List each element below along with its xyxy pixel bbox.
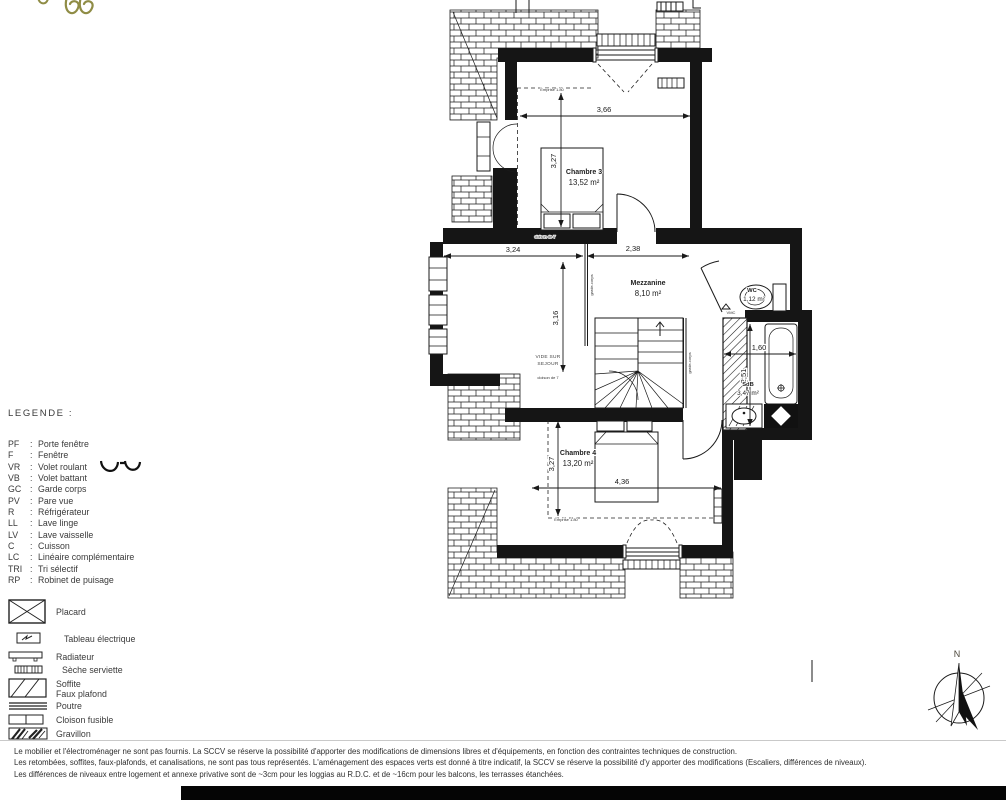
disclaimer-line-3: Les différences de niveaux entre logemen… xyxy=(14,769,998,780)
room-area-wc: 1,12 m² xyxy=(743,296,765,303)
abbr-label: Porte fenêtre xyxy=(38,439,258,450)
abbr: F xyxy=(8,450,30,461)
dim-mezzanine-height: 3,16 xyxy=(551,311,560,326)
emprise-label: Emprise 1.80 xyxy=(540,87,564,92)
legend-row: TRI:Tri sélectif xyxy=(8,564,258,575)
abbr-label: Volet battant xyxy=(38,473,258,484)
placard-icon xyxy=(8,599,56,625)
abbr-label: Linéaire complémentaire xyxy=(38,552,258,563)
symbol-label: Cloison fusible xyxy=(56,715,113,725)
cloison-label: cloison de 7 xyxy=(537,375,559,380)
abbr-label: Robinet de puisage xyxy=(38,575,258,586)
legend-row: LC:Linéaire complémentaire xyxy=(8,552,258,563)
symbol-label: Poutre xyxy=(56,701,82,711)
stairs-icon xyxy=(595,318,683,408)
legend-symbol-row: Placard xyxy=(8,599,258,625)
sep: : xyxy=(30,462,38,473)
abbr: PV xyxy=(8,496,30,507)
legend-row: LV:Lave vaisselle xyxy=(8,530,258,541)
sep: : xyxy=(30,496,38,507)
sep: : xyxy=(30,450,38,461)
volet-battant-symbol xyxy=(627,520,677,543)
sep: : xyxy=(30,507,38,518)
abbr-label: Lave vaisselle xyxy=(38,530,258,541)
sep: : xyxy=(30,518,38,529)
symbol-label: Sèche serviette xyxy=(62,665,123,675)
vide-sur-sejour-label: SEJOUR xyxy=(537,361,558,367)
room-area-mezzanine: 8,10 m² xyxy=(635,289,662,298)
dim-chambre4-height: 3,27 xyxy=(547,457,556,472)
legend-row: PF:Porte fenêtre xyxy=(8,439,258,450)
vmc-label: VMC xyxy=(727,310,736,315)
windows-mezzanine-left-icon xyxy=(429,257,447,354)
symbol-label: SoffiteFaux plafond xyxy=(56,679,107,699)
abbr: RP xyxy=(8,575,30,586)
footer-divider xyxy=(0,740,1006,741)
abbr: LC xyxy=(8,552,30,563)
legend: LEGENDE : PF:Porte fenêtre F:Fenêtre VR:… xyxy=(8,408,258,740)
door-wc xyxy=(701,261,722,312)
sep: : xyxy=(30,530,38,541)
abbr-label: Volet roulant xyxy=(38,462,258,473)
footer-disclaimer: Le mobilier et l'électroménager ne sont … xyxy=(14,746,998,780)
abbr: C xyxy=(8,541,30,552)
legend-row: LL:Lave linge xyxy=(8,518,258,529)
abbr: LV xyxy=(8,530,30,541)
bathtub-icon xyxy=(765,324,797,404)
legend-symbols: Placard Tableau électrique Radiateur Sèc… xyxy=(8,599,258,740)
legend-title: LEGENDE : xyxy=(8,408,258,419)
bottom-bar xyxy=(181,786,1006,800)
legend-row: PV:Pare vue xyxy=(8,496,258,507)
legend-symbol-row: Sèche serviette xyxy=(8,665,258,675)
abbr: PF xyxy=(8,439,30,450)
gravillon-icon xyxy=(8,727,56,740)
vide-sur-sejour-label: VIDE SUR xyxy=(535,354,560,360)
dim-mezzanine-left: 3,24 xyxy=(506,245,521,254)
radiator-chambre3-icon xyxy=(658,78,684,88)
symbol-label: Radiateur xyxy=(56,652,94,662)
door-chambre3 xyxy=(617,194,655,232)
abbr-label: Fenêtre xyxy=(38,450,258,461)
symbol-label: Placard xyxy=(56,607,86,617)
volet-battant-symbol xyxy=(598,64,652,92)
sep: : xyxy=(30,552,38,563)
room-name-mezzanine: Mezzanine xyxy=(630,280,665,287)
cloison-label: cloison de 7 xyxy=(534,234,556,239)
legend-symbol-row: Gravillon xyxy=(8,727,258,740)
sep: : xyxy=(30,541,38,552)
door-chambre4 xyxy=(683,420,722,459)
symbol-label: Gravillon xyxy=(56,729,91,739)
sep: : xyxy=(30,575,38,586)
abbr: GC xyxy=(8,484,30,495)
abbr-label: Tri sélectif xyxy=(38,564,258,575)
abbr-label: Pare vue xyxy=(38,496,258,507)
sep: : xyxy=(30,439,38,450)
tableau-electrique-icon xyxy=(8,632,64,645)
bed-chambre4-icon xyxy=(595,421,658,502)
dim-chambre4-width: 4,36 xyxy=(615,477,630,486)
sep: : xyxy=(30,473,38,484)
room-name-chambre4: Chambre 4 xyxy=(560,450,596,457)
compass-needle-white xyxy=(951,663,959,726)
legend-row: RP:Robinet de puisage xyxy=(8,575,258,586)
symbol-label: Tableau électrique xyxy=(64,634,135,644)
legend-symbol-row: Poutre xyxy=(8,701,258,711)
poutre-icon xyxy=(8,701,56,711)
sep: : xyxy=(30,564,38,575)
disclaimer-line-2: Les retombées, soffites, faux-plafonds, … xyxy=(14,757,998,768)
radiateur-icon xyxy=(8,651,56,662)
legend-symbol-row: Tableau électrique xyxy=(8,632,258,645)
sep: : xyxy=(30,484,38,495)
garde-corps-label: garde-corps xyxy=(687,352,692,373)
radiator-chambre4-icon xyxy=(714,489,722,523)
abbr: VB xyxy=(8,473,30,484)
room-area-chambre4: 13,20 m² xyxy=(563,459,594,468)
legend-symbol-row: Cloison fusible xyxy=(8,714,258,725)
compass-rose: N xyxy=(928,649,990,730)
room-area-sdb: 3,47 m² xyxy=(737,390,759,397)
abbr-label: Lave linge xyxy=(38,518,258,529)
abbr-label: Réfrigérateur xyxy=(38,507,258,518)
disclaimer-line-1: Le mobilier et l'électroménager ne sont … xyxy=(14,746,998,757)
garde-corps-label: garde-corps xyxy=(589,274,594,295)
window-chambre3-top-icon xyxy=(593,34,658,92)
room-name-wc: WC xyxy=(747,288,757,294)
north-label: N xyxy=(954,649,961,659)
soffite-faux-plafond-icon xyxy=(8,678,56,699)
washing-machine-icon xyxy=(764,404,798,428)
legend-row: C:Cuisson xyxy=(8,541,258,552)
washbasin-icon xyxy=(726,404,762,428)
dim-sdb-width: 1,60 xyxy=(752,343,767,352)
legend-symbol-row: SoffiteFaux plafond xyxy=(8,678,258,699)
legend-row: GC:Garde corps xyxy=(8,484,258,495)
abbr: TRI xyxy=(8,564,30,575)
abbr-label: Cuisson xyxy=(38,541,258,552)
room-area-chambre3: 13,52 m² xyxy=(569,178,600,187)
legend-symbol-row: Radiateur xyxy=(8,651,258,662)
dim-chambre3-height: 3,27 xyxy=(549,154,558,169)
abbr: VR xyxy=(8,462,30,473)
abbr-label: Garde corps xyxy=(38,484,258,495)
room-name-chambre3: Chambre 3 xyxy=(566,169,602,176)
room-name-sdb: SdB xyxy=(742,382,754,388)
closet-door-arcs xyxy=(493,124,517,172)
dim-chambre3-width: 3,66 xyxy=(597,105,612,114)
dim-mezzanine-right: 2,38 xyxy=(626,244,641,253)
cloison-fusible-icon xyxy=(8,714,56,725)
legend-row: R:Réfrigérateur xyxy=(8,507,258,518)
abbr: LL xyxy=(8,518,30,529)
volet-battant-legend-icon xyxy=(100,460,148,483)
seche-serviette-icon xyxy=(8,665,62,675)
abbr: R xyxy=(8,507,30,518)
window-chambre4-bottom-icon xyxy=(623,520,682,569)
window-chambre3-left-icon xyxy=(477,122,517,172)
emprise-label: Emprise 1.80 xyxy=(554,517,578,522)
floor-plan-page: { "colors": {"ink":"#1a1a1a","text":"#3a… xyxy=(0,0,1006,800)
